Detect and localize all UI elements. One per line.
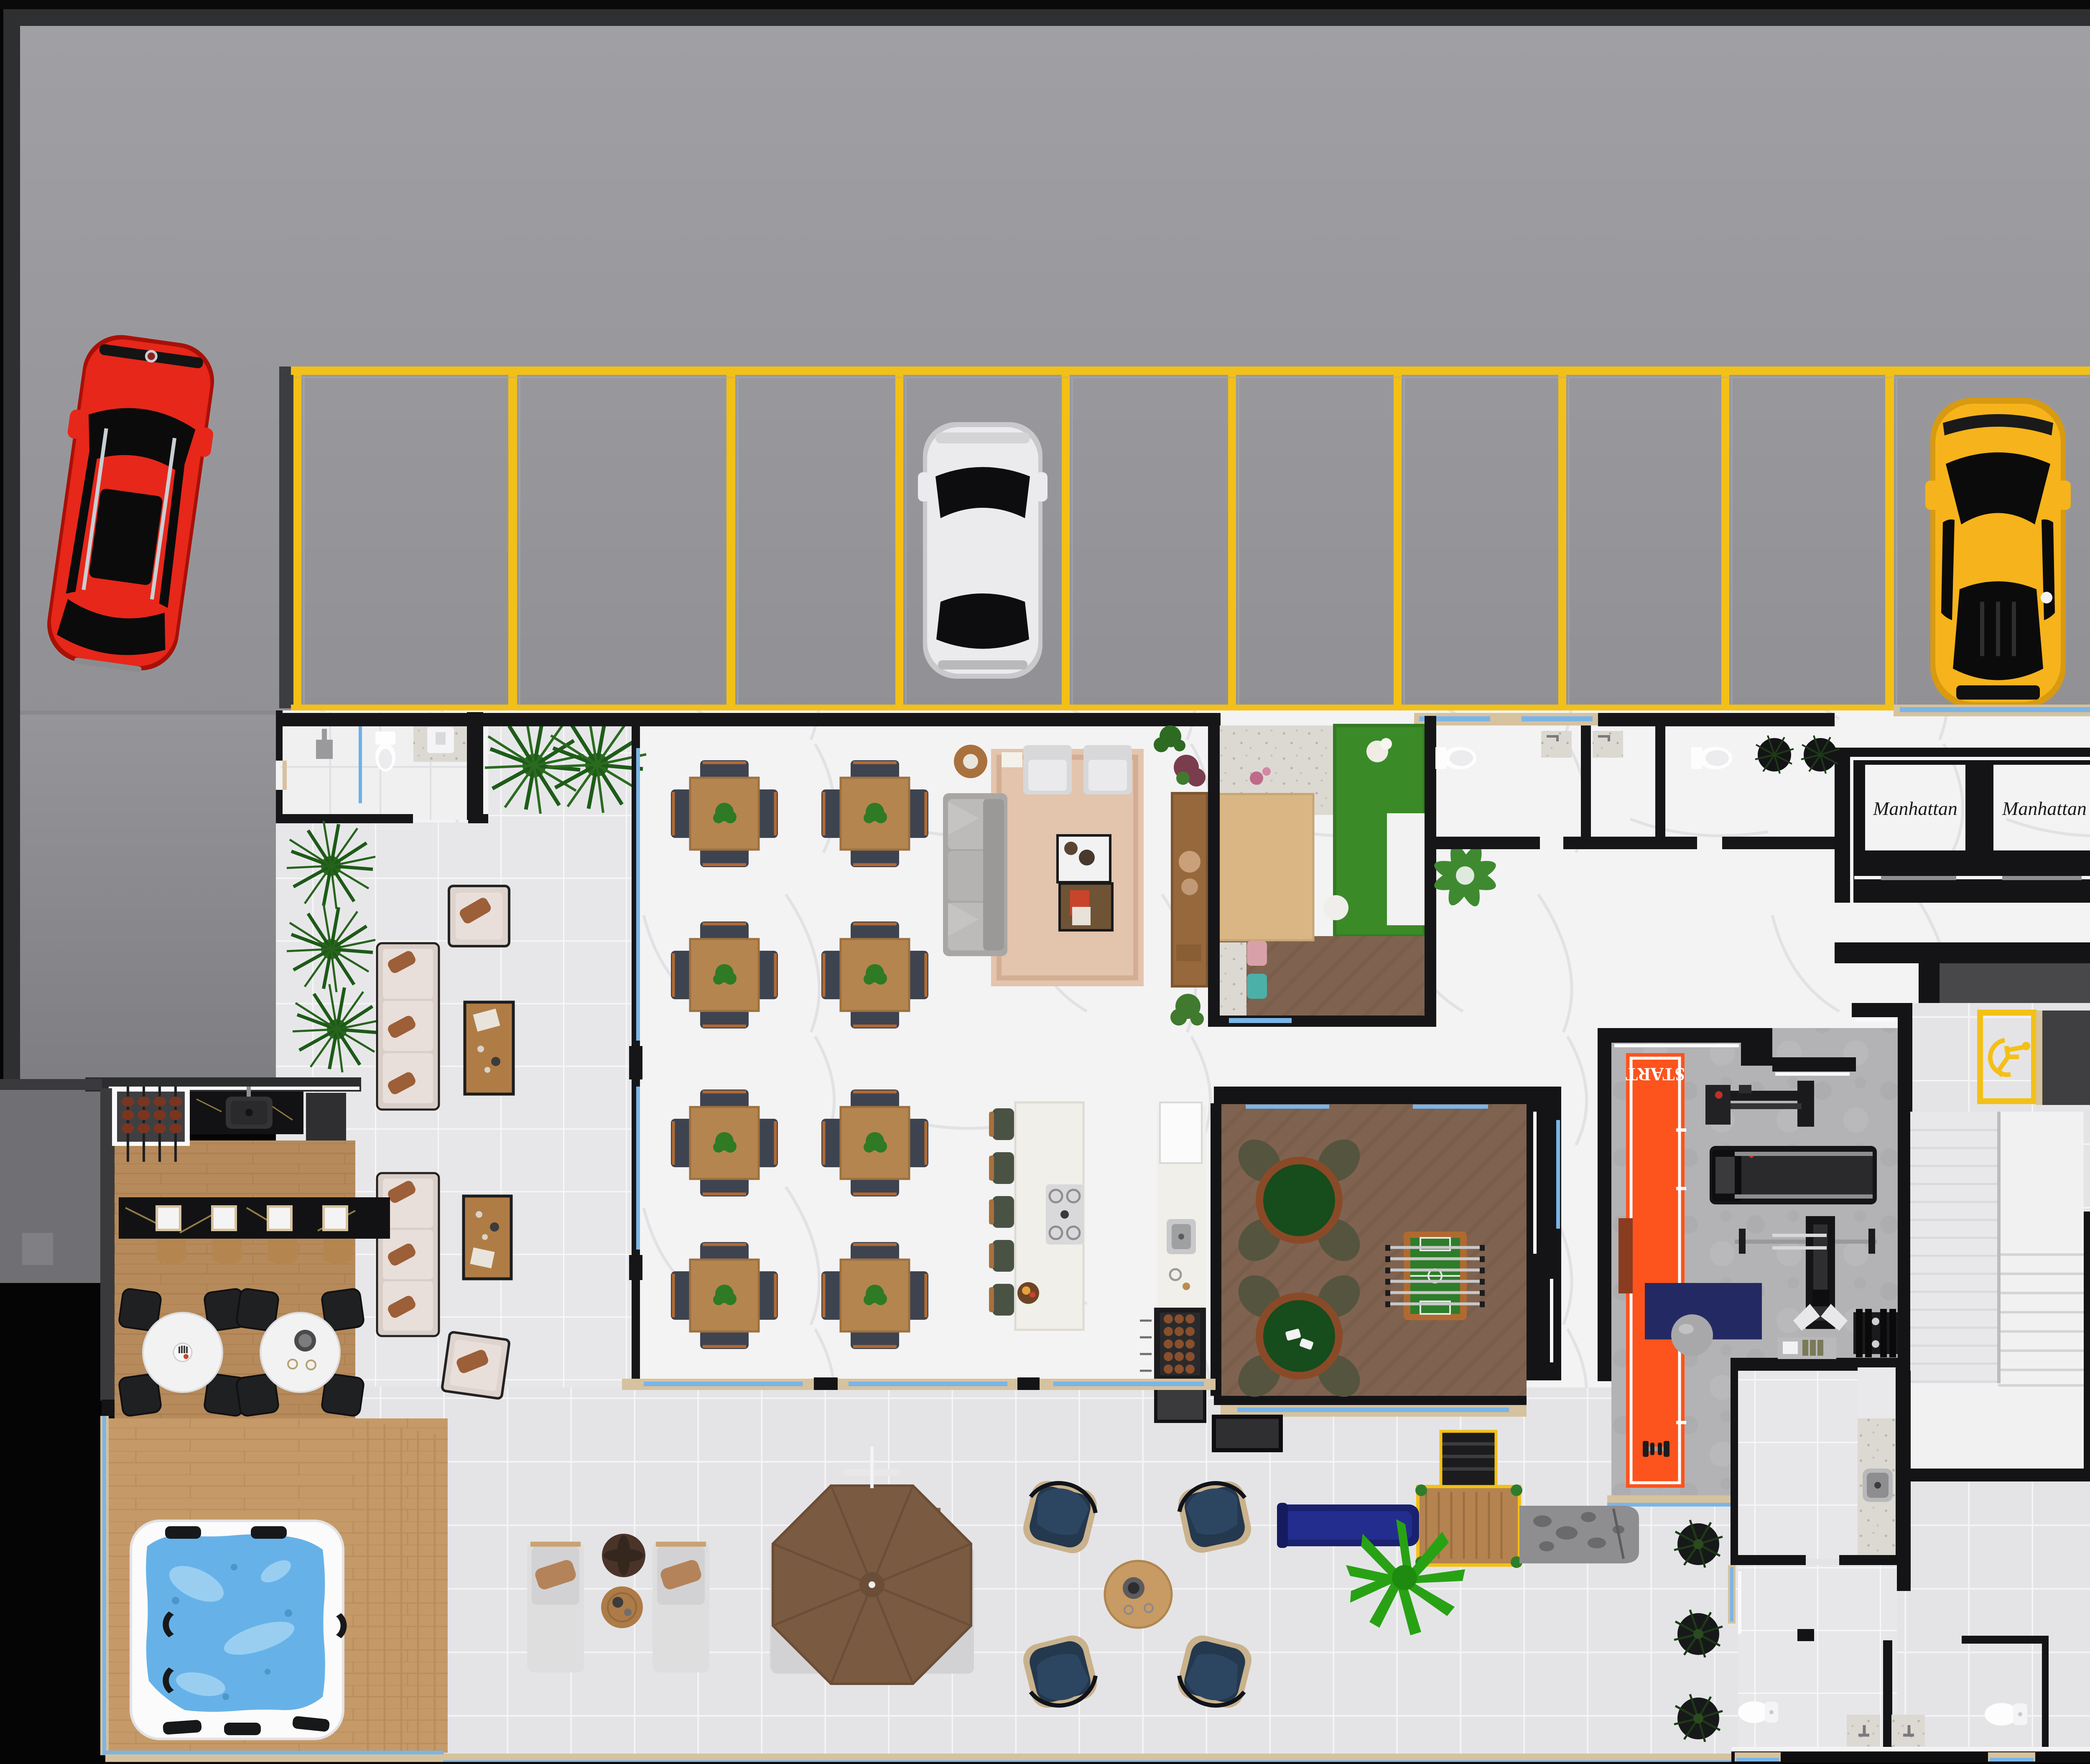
svg-text:Manhattan: Manhattan <box>2002 798 2087 819</box>
svg-text:Manhattan: Manhattan <box>1873 798 1957 819</box>
svg-text:START: START <box>1626 1064 1685 1084</box>
